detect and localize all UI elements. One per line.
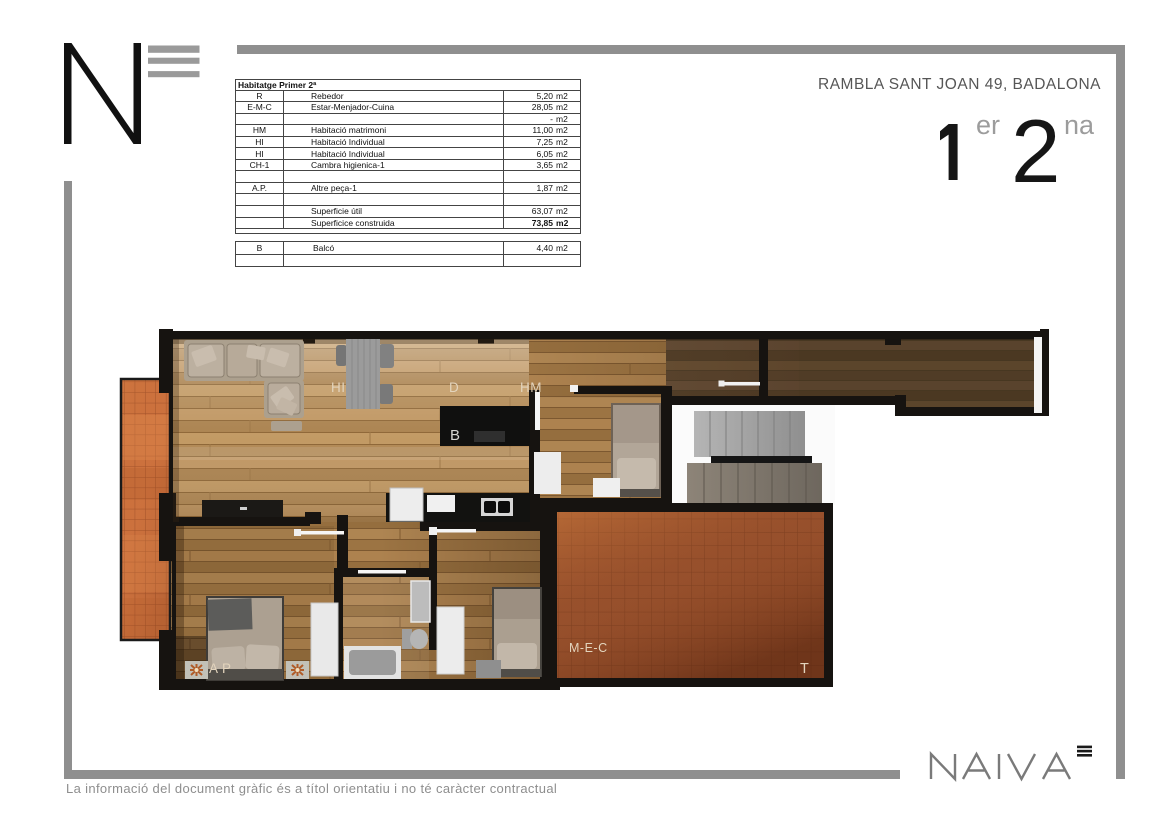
svg-text:T: T <box>800 661 809 677</box>
svg-text:D: D <box>449 380 459 395</box>
svg-text:M-E-C: M-E-C <box>569 641 608 655</box>
svg-text:A P: A P <box>209 661 232 676</box>
svg-text:HM: HM <box>520 380 542 395</box>
svg-text:HI: HI <box>331 380 346 395</box>
svg-text:B: B <box>450 427 461 444</box>
